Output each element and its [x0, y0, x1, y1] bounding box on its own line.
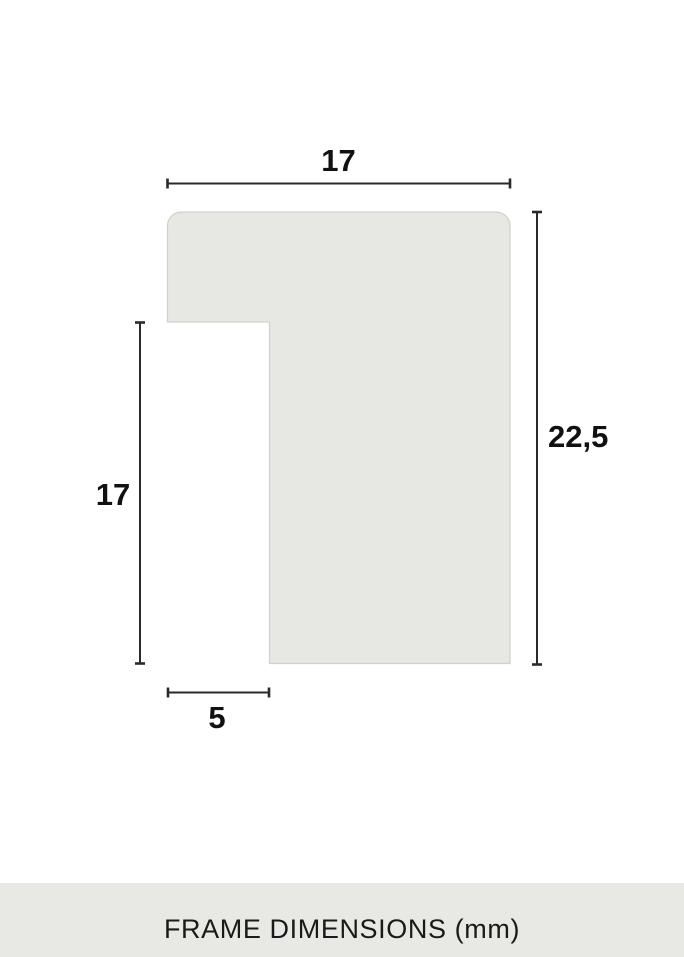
svg-text:17: 17 [321, 143, 355, 178]
svg-text:17: 17 [96, 477, 130, 512]
svg-text:22,5: 22,5 [548, 419, 608, 454]
svg-text:5: 5 [208, 700, 225, 735]
svg-text:FRAME DIMENSIONS (mm): FRAME DIMENSIONS (mm) [164, 914, 520, 944]
